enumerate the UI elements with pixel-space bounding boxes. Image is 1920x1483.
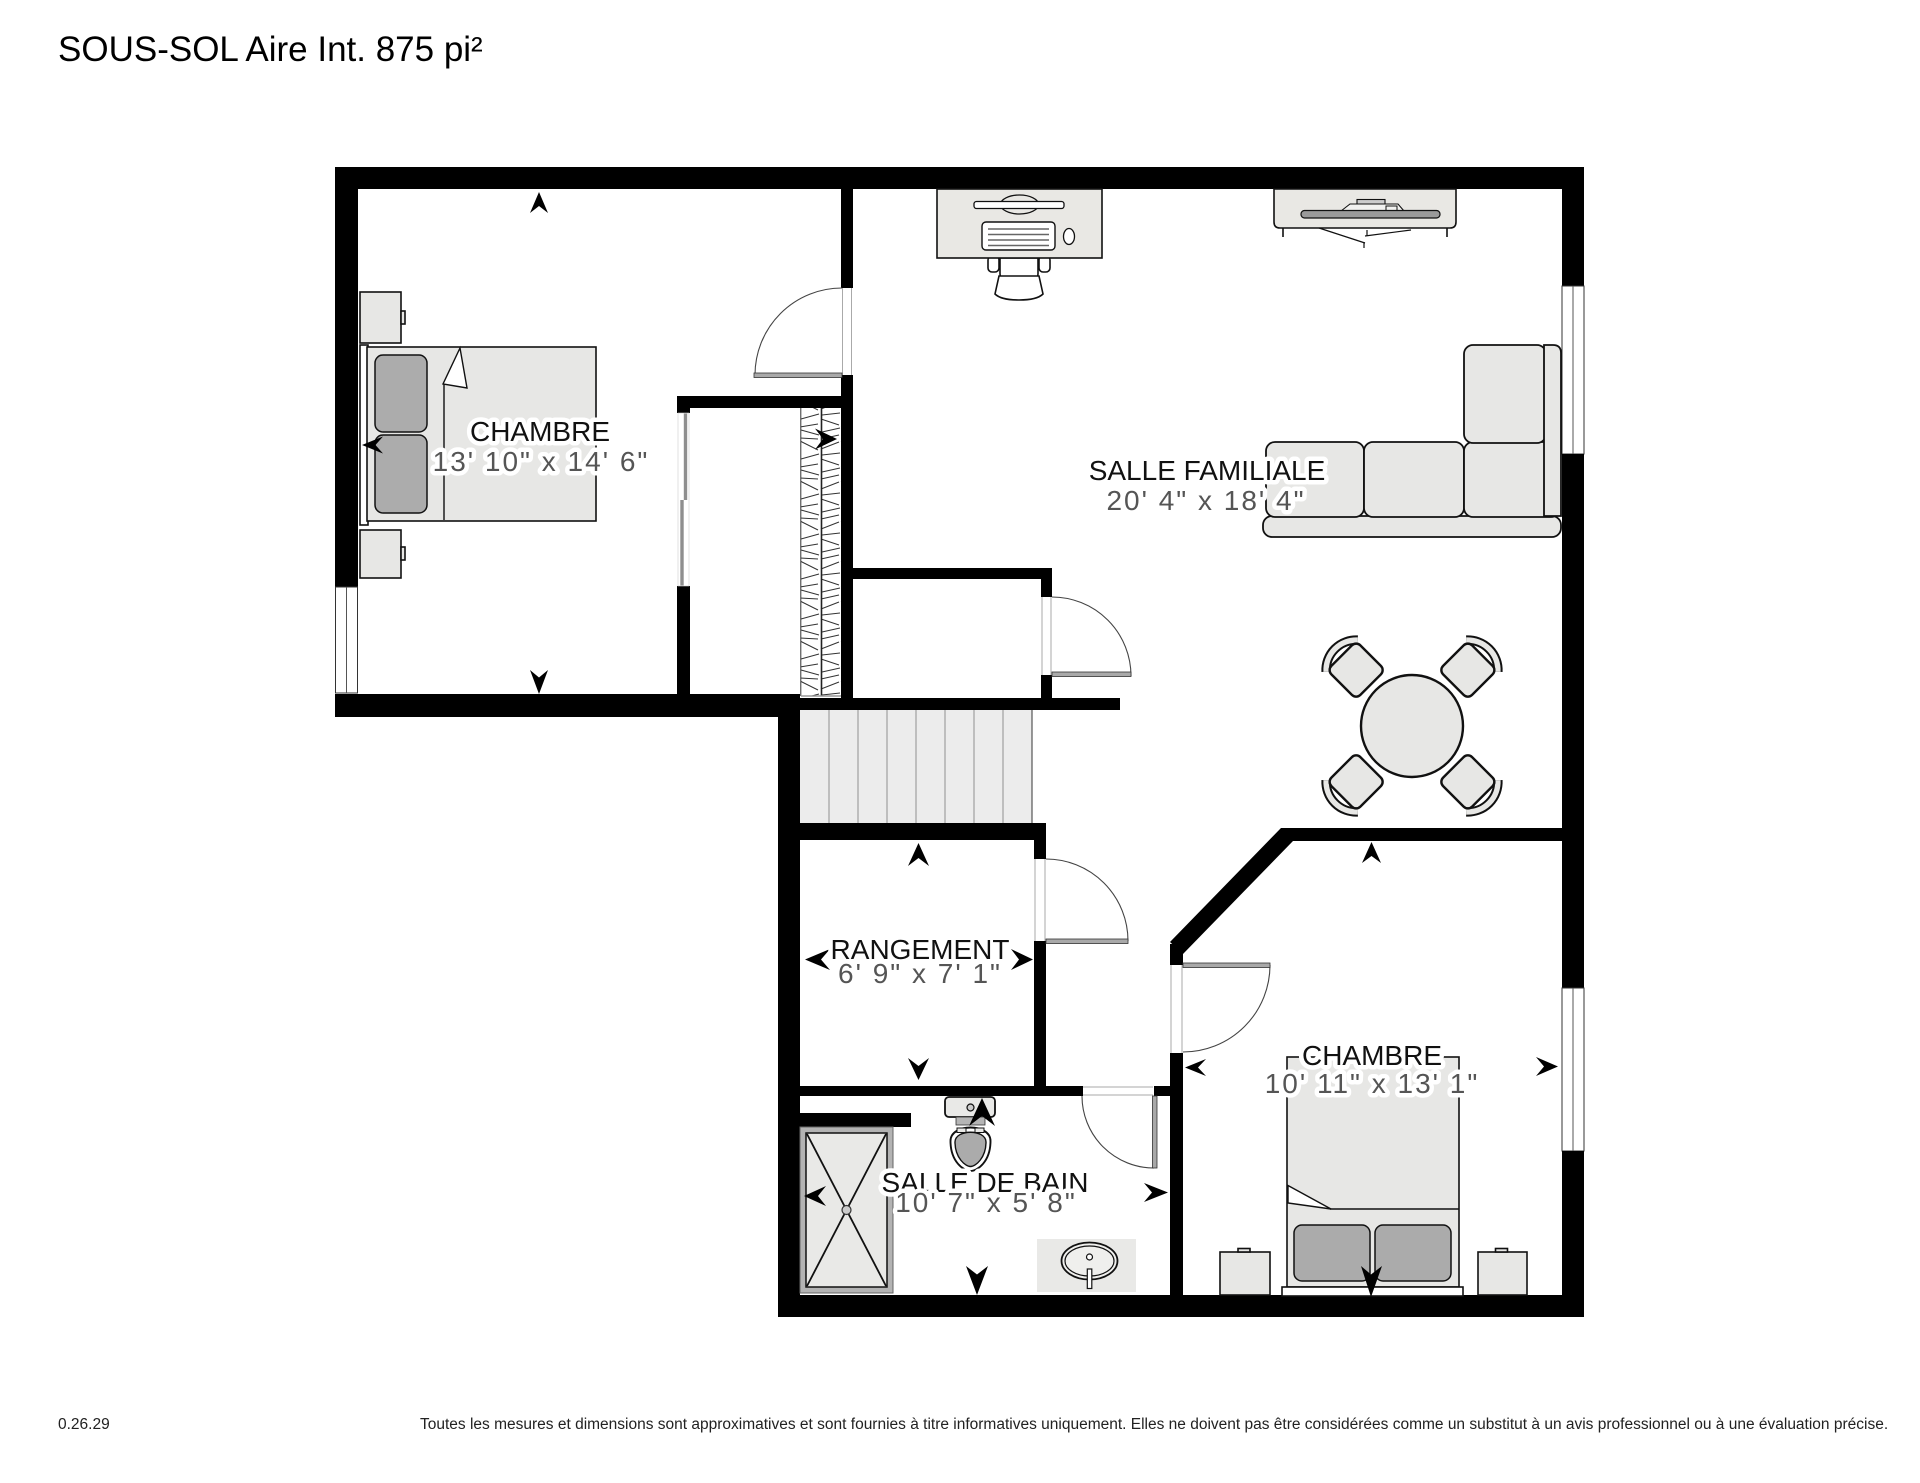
svg-text:0.26.29: 0.26.29 bbox=[58, 1416, 110, 1433]
svg-text:SALLE FAMILIALE: SALLE FAMILIALE bbox=[1089, 455, 1326, 486]
svg-text:13' 10" x 14' 6": 13' 10" x 14' 6" bbox=[433, 446, 650, 477]
svg-text:10' 7" x 5' 8": 10' 7" x 5' 8" bbox=[895, 1187, 1077, 1218]
svg-text:Toutes les mesures et dimensio: Toutes les mesures et dimensions sont ap… bbox=[420, 1416, 1888, 1433]
svg-text:20' 4" x 18' 4": 20' 4" x 18' 4" bbox=[1106, 485, 1305, 516]
svg-text:SOUS-SOL Aire Int. 875 pi²: SOUS-SOL Aire Int. 875 pi² bbox=[58, 30, 483, 69]
svg-text:CHAMBRE: CHAMBRE bbox=[470, 416, 610, 447]
svg-text:6' 9" x 7' 1": 6' 9" x 7' 1" bbox=[838, 958, 1002, 989]
svg-text:CHAMBRE: CHAMBRE bbox=[1302, 1040, 1442, 1071]
svg-text:10' 11" x 13' 1": 10' 11" x 13' 1" bbox=[1265, 1068, 1480, 1099]
